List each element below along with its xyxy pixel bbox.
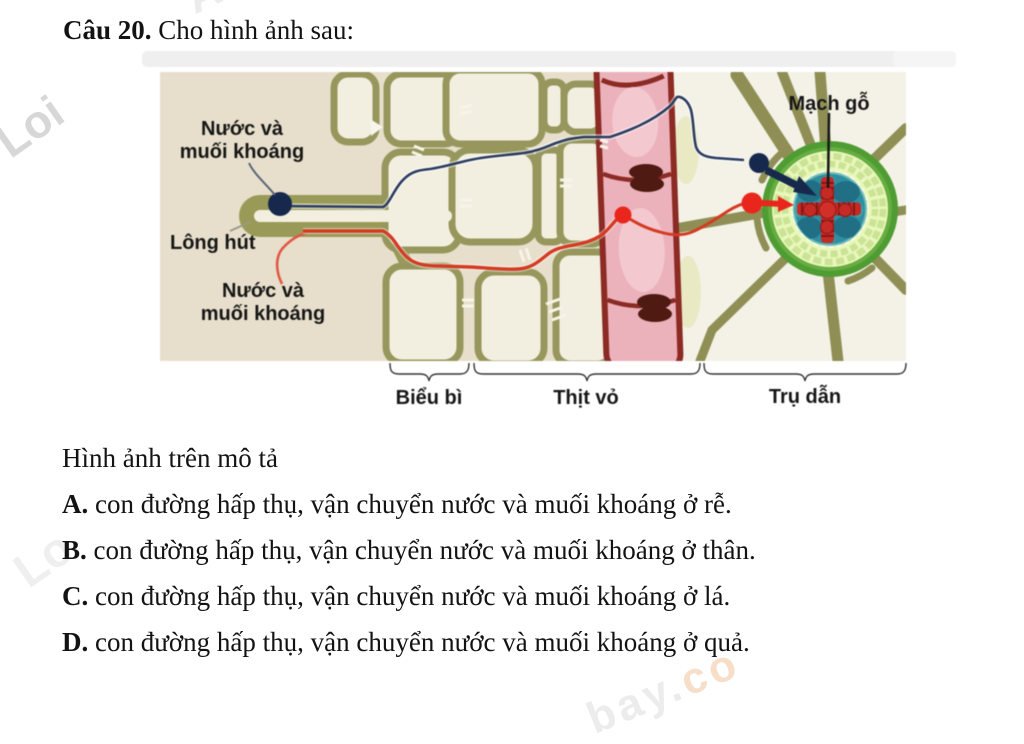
svg-text:muối khoáng: muối khoáng xyxy=(201,303,325,325)
svg-text:Trụ dẫn: Trụ dẫn xyxy=(769,384,841,408)
svg-text:Biểu bì: Biểu bì xyxy=(396,387,463,409)
svg-text:Mạch gỗ: Mạch gỗ xyxy=(788,91,869,115)
svg-text:Lông hút: Lông hút xyxy=(170,232,256,254)
svg-text:Thịt vỏ: Thịt vỏ xyxy=(553,387,619,409)
svg-text:Nước và: Nước và xyxy=(222,280,305,302)
svg-text:muối khoáng: muối khoáng xyxy=(180,141,304,163)
svg-text:Nước và: Nước và xyxy=(201,118,284,140)
